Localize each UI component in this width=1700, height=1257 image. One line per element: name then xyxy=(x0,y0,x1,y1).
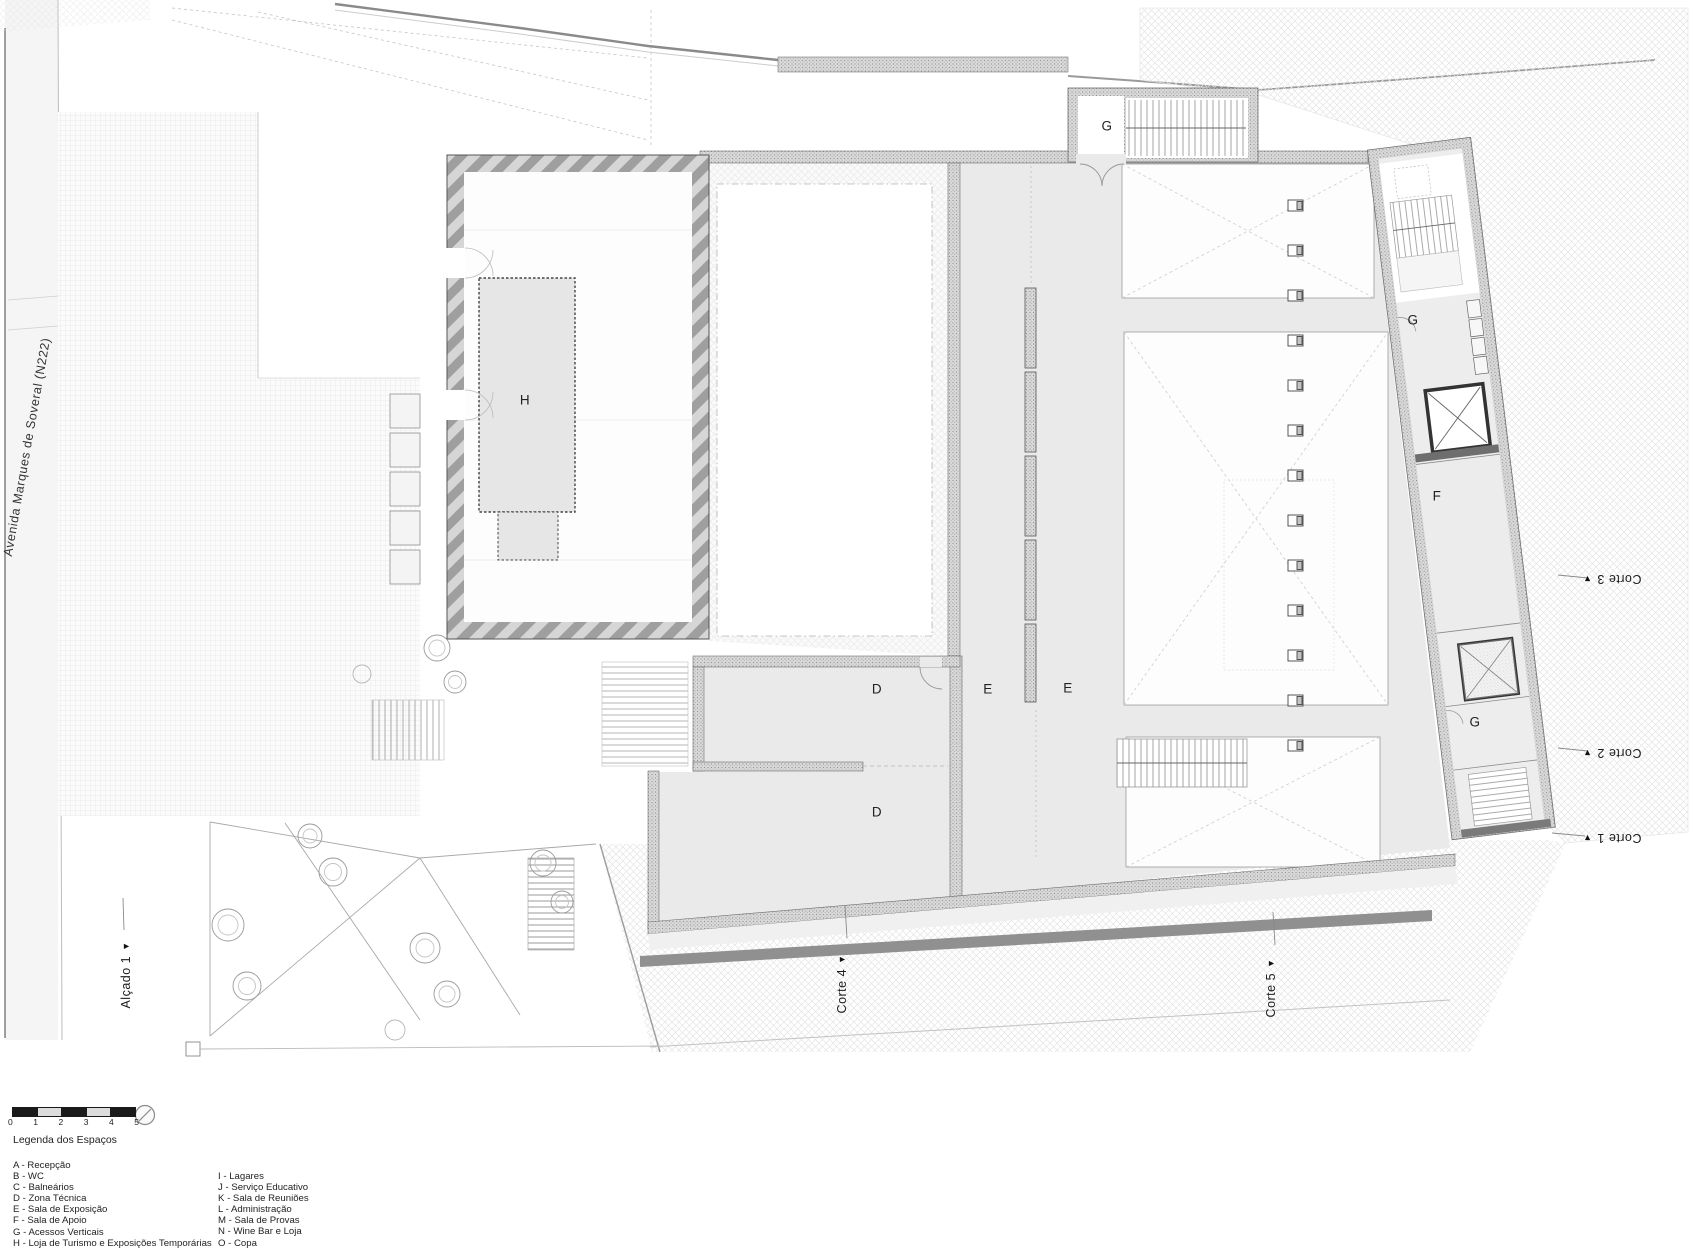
room-label-g-wing-upper: G xyxy=(1407,313,1418,328)
legend-item: B - WC xyxy=(13,1171,212,1182)
legend-item: K - Sala de Reuniões xyxy=(218,1193,309,1204)
legend-column-2: I - Lagares J - Serviço Educativo K - Sa… xyxy=(218,1171,309,1249)
section-arrow-icon: ▼ xyxy=(1583,834,1592,843)
room-label-g-top: G xyxy=(1101,119,1112,134)
legend-item: C - Balneários xyxy=(13,1182,212,1193)
exterior-stair-west xyxy=(602,662,688,766)
inner-courtyard xyxy=(709,163,948,656)
section-marker-alcado-1: Alçado 1▼ xyxy=(119,941,133,1008)
room-label-d-upper: D xyxy=(872,682,882,697)
gallery3-stair xyxy=(1117,739,1247,787)
legend-item: D - Zona Técnica xyxy=(13,1193,212,1204)
legend-column-1: A - Recepção B - WC C - Balneários D - Z… xyxy=(13,1160,212,1249)
legend-item: O - Copa xyxy=(218,1238,309,1249)
floor-plan-page: Avenida Marques de Soveral (N222) G H D … xyxy=(0,0,1700,1257)
section-arrow-icon: ▼ xyxy=(838,955,847,964)
h-west-niches xyxy=(390,394,420,584)
legend-title: Legenda dos Espaços xyxy=(13,1134,117,1146)
room-label-e-right: E xyxy=(1063,681,1073,696)
legend-item: A - Recepção xyxy=(13,1160,212,1171)
legend-item: H - Loja de Turismo e Exposições Temporá… xyxy=(13,1238,212,1249)
room-label-h: H xyxy=(520,393,530,408)
legend-item: M - Sala de Provas xyxy=(218,1215,309,1226)
wing-lower-stair xyxy=(1468,767,1532,826)
legend-item: E - Sala de Exposição xyxy=(13,1204,212,1215)
floor-plan-drawing xyxy=(0,0,1700,1257)
legend-item: F - Sala de Apoio xyxy=(13,1215,212,1226)
room-label-e-left: E xyxy=(983,682,993,697)
scale-bar-ticks: 0 1 2 3 4 5 xyxy=(8,1117,139,1127)
display-wall xyxy=(1025,288,1036,702)
grid-courtyard xyxy=(58,112,420,816)
hatch-top-left xyxy=(0,0,150,32)
legend-item: N - Wine Bar e Loja xyxy=(218,1226,309,1237)
section-arrow-icon: ▼ xyxy=(1583,749,1592,758)
legend-item: L - Administração xyxy=(218,1204,309,1215)
legend-item: G - Acessos Verticais xyxy=(13,1227,212,1238)
garden-steps-upper xyxy=(372,700,444,760)
room-label-d-lower: D xyxy=(872,805,882,820)
room-label-g-wing-lower: G xyxy=(1469,715,1480,730)
legend-item: J - Serviço Educativo xyxy=(218,1182,309,1193)
section-arrow-icon: ▼ xyxy=(1267,959,1276,968)
section-marker-corte-5: Corte 5▼ xyxy=(1264,959,1278,1018)
room-label-f: F xyxy=(1433,489,1442,504)
section-marker-corte-2: Corte 2▼ xyxy=(1583,746,1642,760)
section-marker-corte-1: Corte 1▼ xyxy=(1583,831,1642,845)
scale-bar xyxy=(12,1107,136,1117)
section-marker-corte-4: Corte 4▼ xyxy=(835,955,849,1014)
section-arrow-icon: ▼ xyxy=(1583,575,1592,584)
gallery-2 xyxy=(1124,332,1388,705)
legend-item: I - Lagares xyxy=(218,1171,309,1182)
section-marker-corte-3: Corte 3▼ xyxy=(1583,572,1642,586)
wing-elevator-2 xyxy=(1458,638,1518,700)
wing-elevator-1 xyxy=(1425,384,1490,453)
gallery-1 xyxy=(1122,164,1374,298)
section-arrow-icon: ▼ xyxy=(122,941,131,950)
wing-upper-stair xyxy=(1390,195,1463,292)
building-h xyxy=(390,155,709,639)
